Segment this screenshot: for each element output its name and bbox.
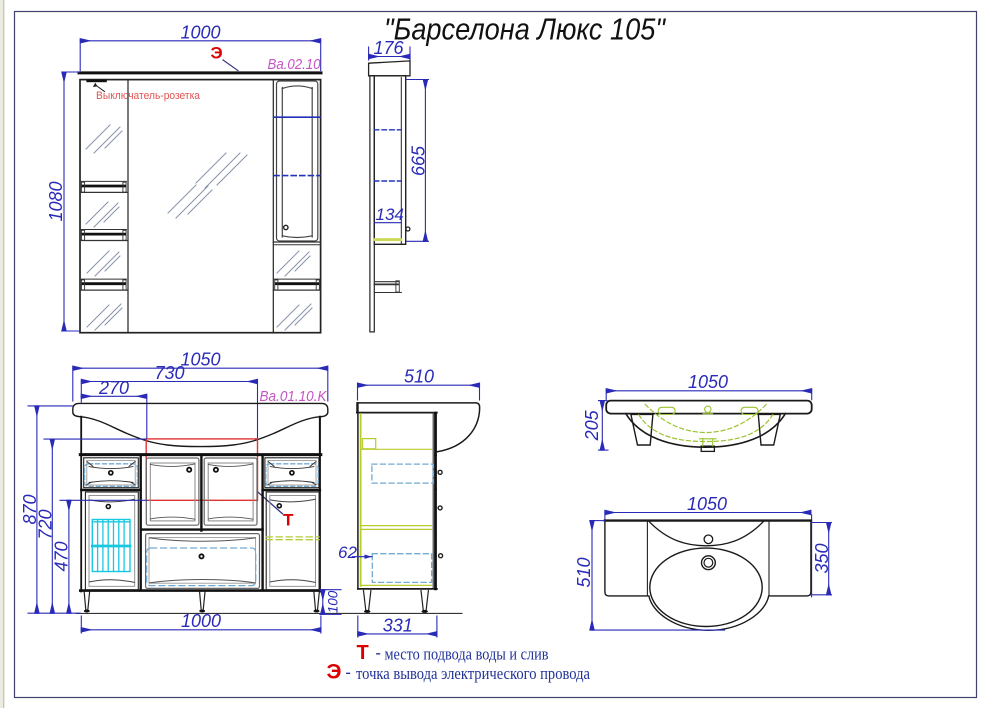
svg-text:Т: Т [283, 510, 294, 529]
svg-text:1050: 1050 [688, 372, 728, 392]
svg-text:Ba.02.10: Ba.02.10 [268, 56, 322, 73]
svg-text:-: - [346, 664, 351, 681]
svg-text:134: 134 [376, 205, 404, 224]
svg-text:1000: 1000 [181, 611, 221, 631]
svg-text:Э: Э [211, 44, 223, 63]
svg-text:100: 100 [326, 590, 341, 613]
svg-text:331: 331 [383, 615, 413, 635]
svg-text:точка вывода электрического пр: точка вывода электрического провода [356, 664, 591, 683]
svg-text:730: 730 [154, 363, 184, 383]
svg-text:510: 510 [574, 557, 594, 587]
svg-text:665: 665 [409, 145, 429, 176]
svg-text:205: 205 [582, 409, 602, 441]
svg-text:1050: 1050 [687, 494, 727, 514]
svg-text:176: 176 [373, 38, 404, 58]
svg-text:Э: Э [327, 661, 342, 684]
svg-text:720: 720 [36, 509, 56, 539]
svg-text:1080: 1080 [46, 181, 66, 221]
svg-text:62: 62 [338, 543, 357, 562]
svg-text:1000: 1000 [180, 23, 220, 43]
svg-text:-: - [376, 645, 381, 662]
svg-text:510: 510 [404, 367, 434, 387]
svg-text:350: 350 [812, 543, 832, 573]
svg-text:Выключатель-розетка: Выключатель-розетка [96, 90, 201, 102]
svg-text:Т: Т [357, 642, 369, 664]
svg-text:Ba.01.10.K: Ba.01.10.K [260, 388, 328, 405]
svg-text:470: 470 [52, 541, 72, 571]
svg-text:270: 270 [98, 378, 129, 398]
svg-text:место подвода воды и слив: место подвода воды и слив [385, 644, 549, 663]
svg-text:"Барселона Люкс 105": "Барселона Люкс 105" [384, 13, 666, 47]
svg-text:1050: 1050 [180, 350, 220, 370]
